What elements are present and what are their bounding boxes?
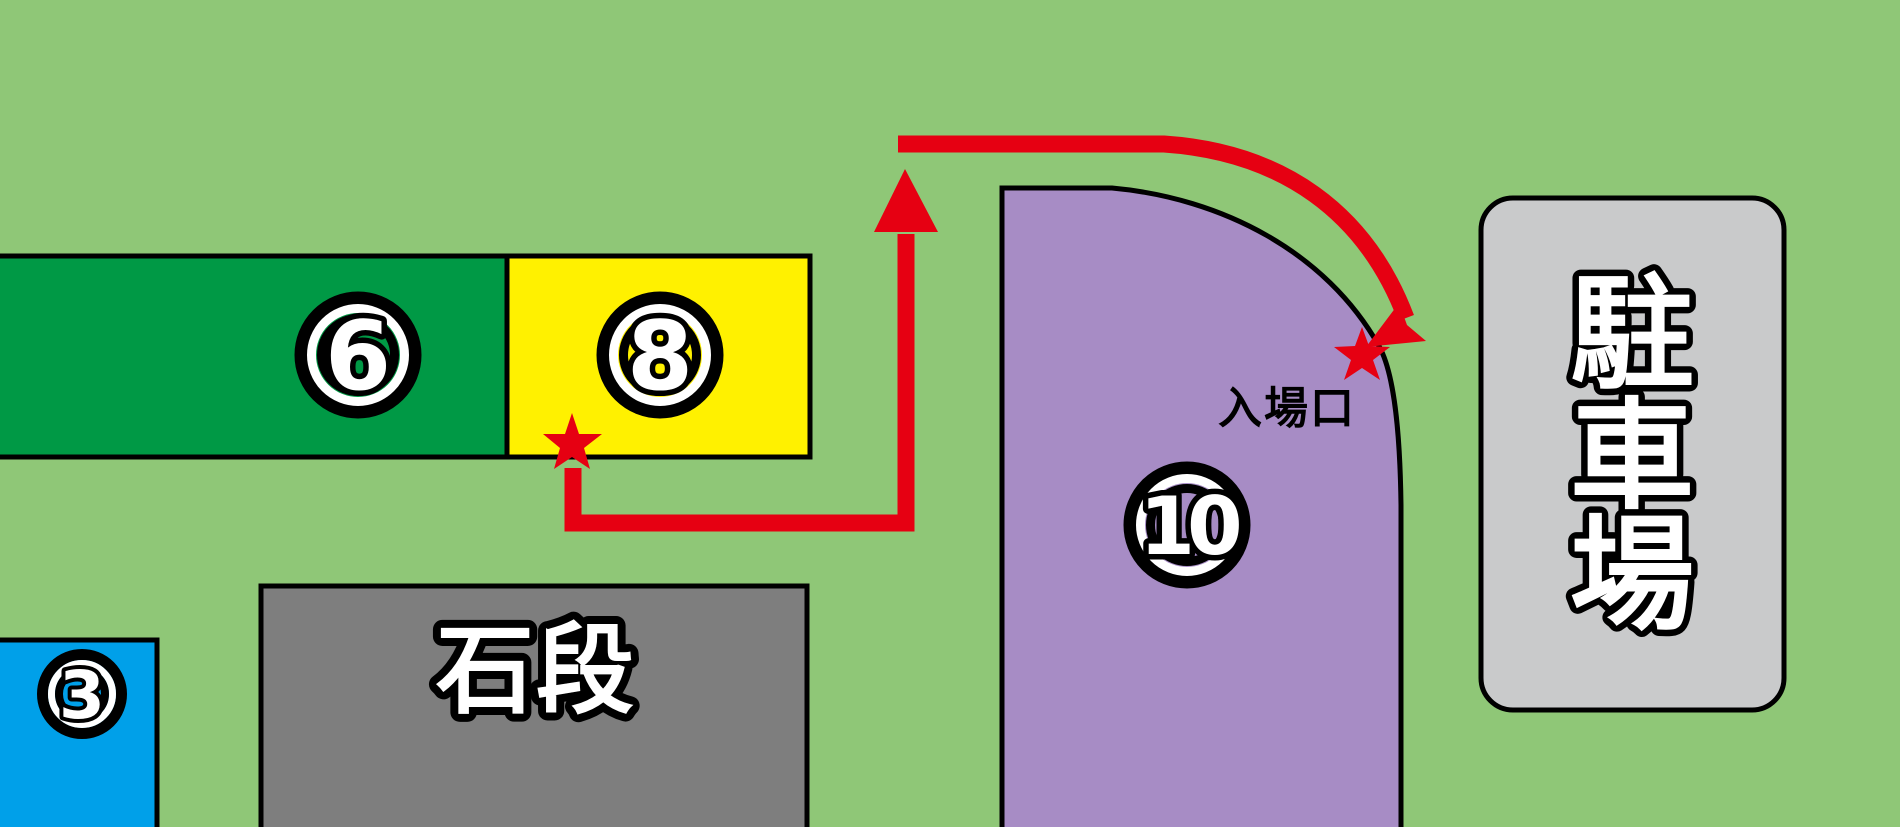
badge-6-number: 6 [325,302,391,412]
badge-10: 10 [1130,468,1244,582]
badge-6: 6 [301,298,415,412]
map-canvas: 石段 駐 車 場 6 8 [0,0,1900,827]
parking-area: 駐 車 場 [1481,198,1784,710]
badge-3: 3 [43,655,122,735]
badge-10-number: 10 [1139,480,1239,573]
stone-steps-label: 石段 [436,614,636,728]
stone-steps-area: 石段 [261,586,807,827]
badge-8-number: 8 [627,302,693,412]
area-6-shape [0,256,507,457]
parking-label-char-1: 駐 [1570,263,1694,407]
badge-3-number: 3 [59,657,105,734]
venue-map: 石段 駐 車 場 6 8 [0,0,1900,827]
badge-8: 8 [603,298,717,412]
parking-label-char-3: 場 [1570,504,1694,648]
entrance-label: 入場口 [1218,383,1356,434]
